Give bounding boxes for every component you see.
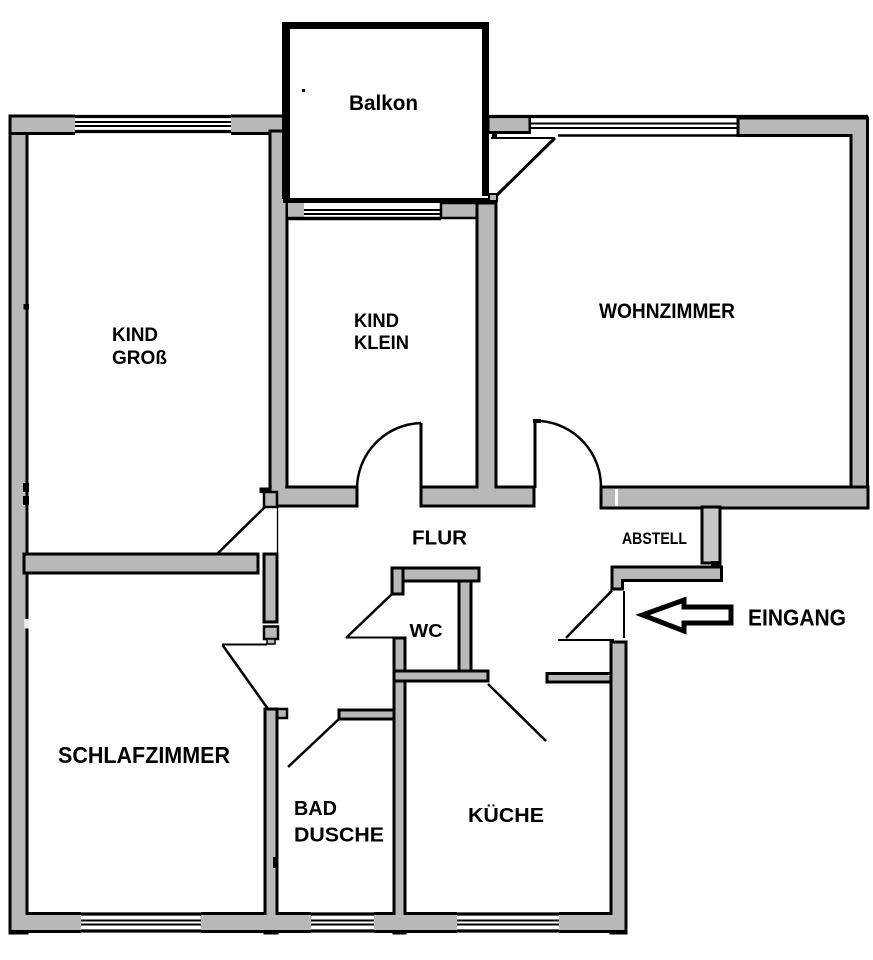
svg-text:FLUR: FLUR xyxy=(412,528,468,550)
svg-text:EINGANG: EINGANG xyxy=(748,605,846,631)
svg-text:WOHNZIMMER: WOHNZIMMER xyxy=(599,299,735,323)
svg-text:DUSCHE: DUSCHE xyxy=(294,825,384,847)
svg-text:BAD: BAD xyxy=(294,798,337,820)
svg-text:SCHLAFZIMMER: SCHLAFZIMMER xyxy=(58,742,230,768)
svg-text:ABSTELL: ABSTELL xyxy=(622,529,687,548)
svg-text:WC: WC xyxy=(410,620,443,641)
svg-text:GROß: GROß xyxy=(112,348,167,369)
svg-text:Balkon: Balkon xyxy=(349,92,418,115)
svg-text:KÜCHE: KÜCHE xyxy=(468,804,544,827)
svg-text:KLEIN: KLEIN xyxy=(354,333,409,354)
svg-text:KIND: KIND xyxy=(354,311,399,332)
svg-text:KIND: KIND xyxy=(112,325,158,346)
